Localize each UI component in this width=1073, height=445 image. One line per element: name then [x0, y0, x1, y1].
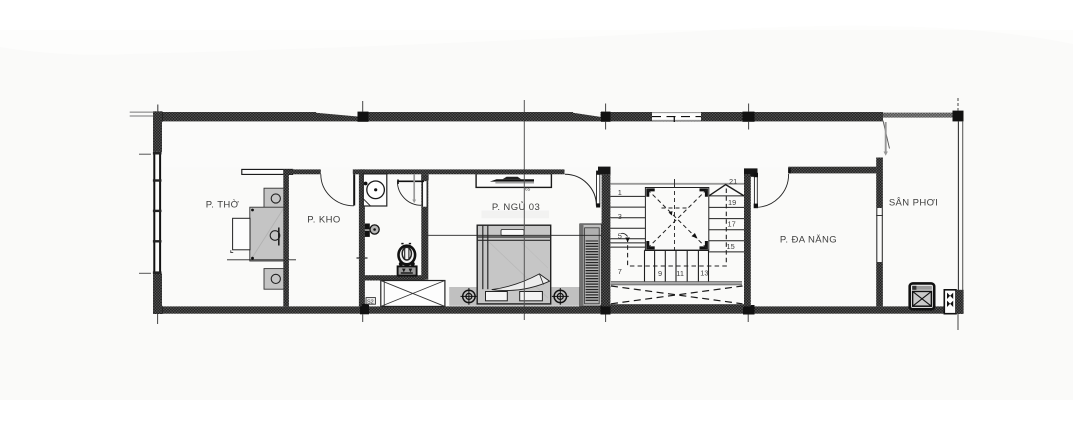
- svg-text:19: 19: [728, 198, 736, 207]
- svg-text:65: 65: [525, 187, 531, 193]
- svg-text:21: 21: [729, 177, 737, 186]
- svg-text:S2: S2: [367, 299, 374, 305]
- svg-text:13: 13: [700, 269, 708, 278]
- svg-text:SÂN PHƠI: SÂN PHƠI: [889, 198, 938, 209]
- svg-text:P. KHO: P. KHO: [307, 215, 340, 226]
- svg-text:5: 5: [618, 232, 622, 241]
- svg-text:7: 7: [618, 267, 622, 276]
- svg-text:P. NGỦ 03: P. NGỦ 03: [492, 201, 540, 213]
- svg-text:15: 15: [727, 242, 735, 251]
- svg-text:P. THỜ: P. THỜ: [206, 200, 239, 211]
- svg-text:9: 9: [658, 269, 662, 278]
- svg-text:3: 3: [618, 212, 622, 221]
- svg-text:11: 11: [676, 269, 684, 278]
- svg-text:17: 17: [728, 220, 736, 229]
- svg-text:1: 1: [618, 188, 622, 197]
- svg-text:P. ĐA NĂNG: P. ĐA NĂNG: [780, 235, 837, 246]
